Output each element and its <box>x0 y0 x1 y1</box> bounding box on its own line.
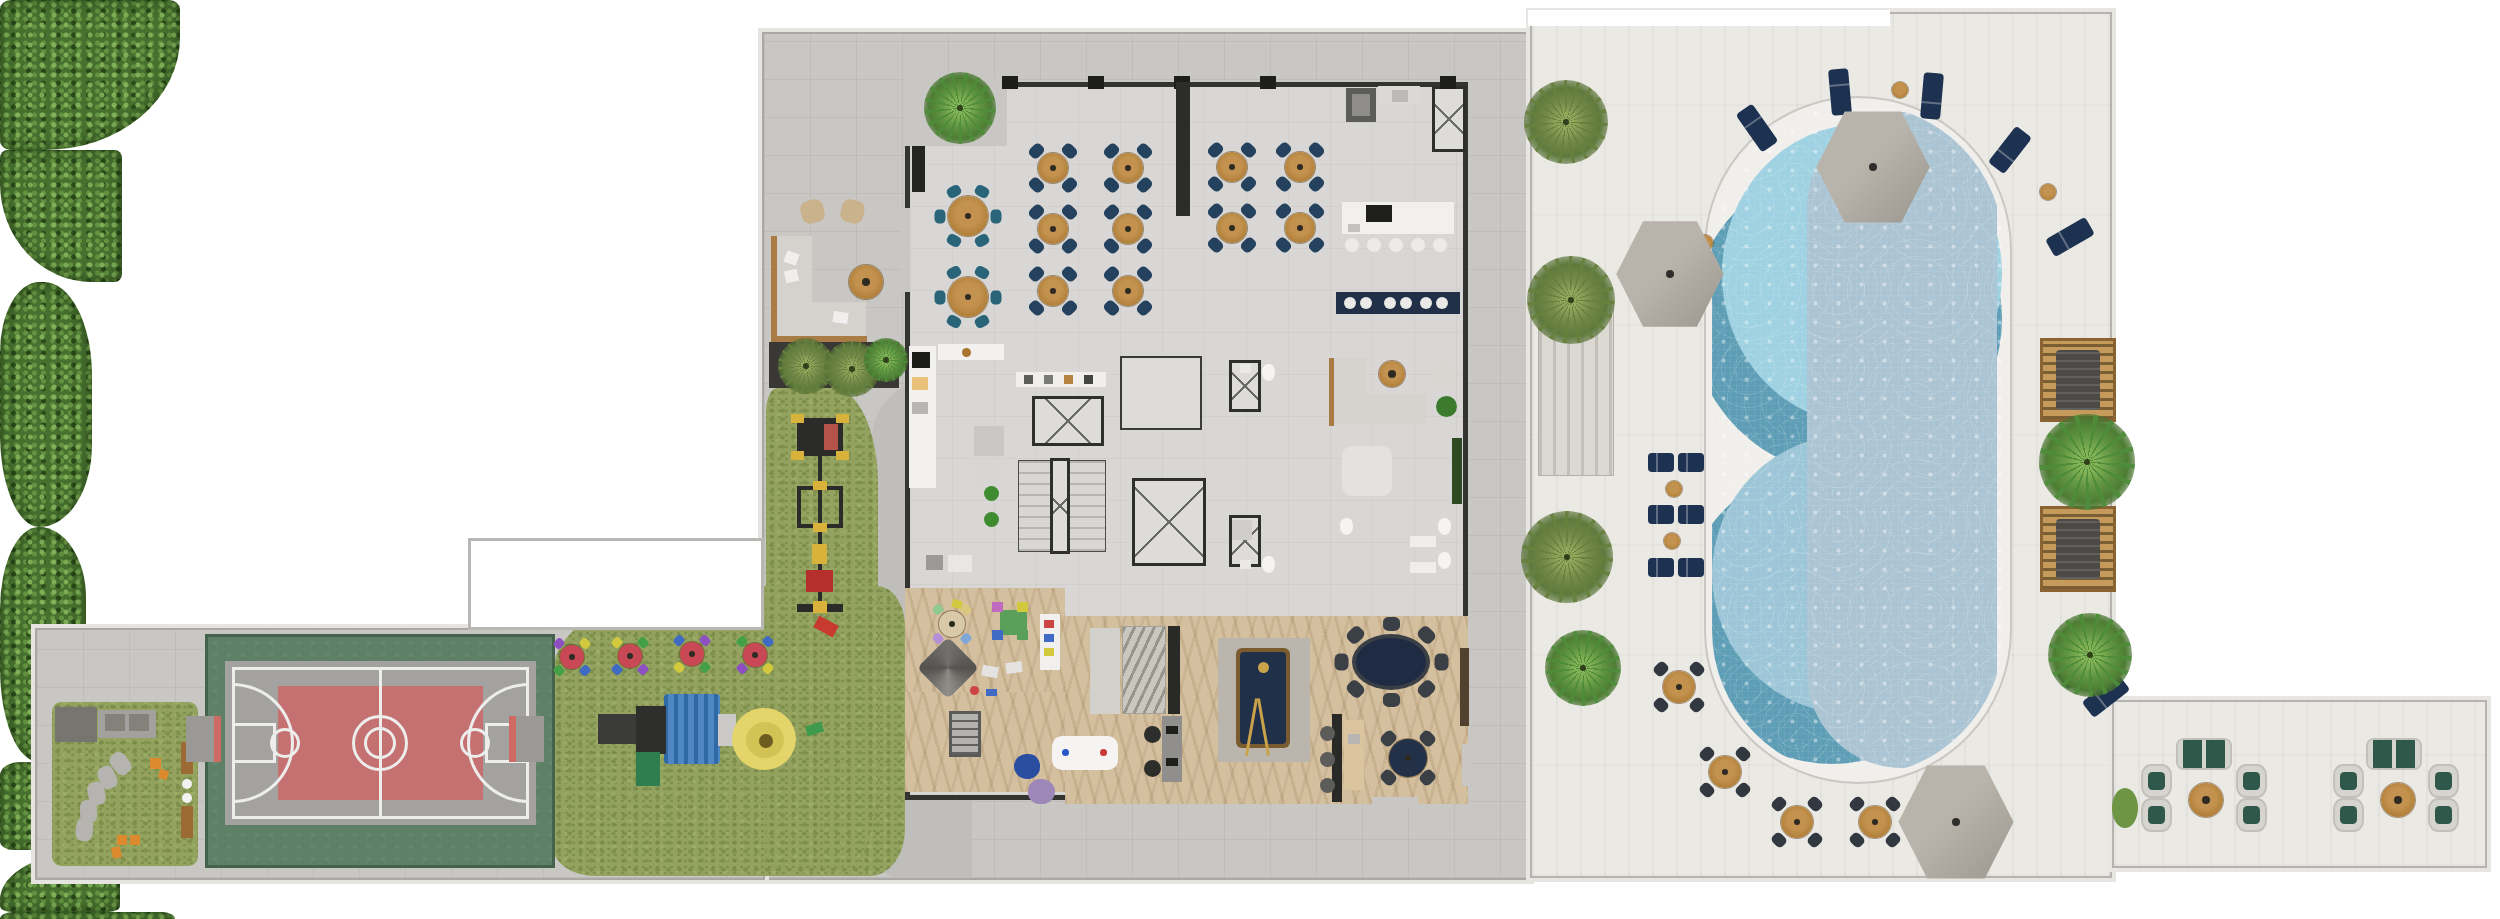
decor-prop <box>970 686 979 695</box>
decor-prop <box>1344 720 1364 790</box>
lounge-armchair <box>2143 766 2170 796</box>
decor-prop <box>1348 734 1360 744</box>
decor-prop <box>1258 662 1269 673</box>
decor-prop <box>1411 238 1425 252</box>
decor-prop <box>1367 238 1381 252</box>
decor-prop <box>1144 726 1161 743</box>
lounge-armchair <box>2238 766 2265 796</box>
side-table <box>2040 184 2056 200</box>
decor-prop <box>1452 438 1462 504</box>
decor-prop <box>516 716 544 762</box>
poker-chair <box>1334 654 1348 671</box>
decor-prop <box>1329 358 1334 426</box>
lounge-armchair <box>2430 800 2457 830</box>
kids-table-center <box>752 652 758 658</box>
decor-prop <box>1144 760 1161 777</box>
decor-prop <box>1433 238 1447 252</box>
decor-prop <box>1432 362 1455 385</box>
decor-prop <box>1372 797 1418 806</box>
dining-table-center <box>1050 288 1056 294</box>
palm-tree <box>1524 80 1608 164</box>
decor-prop <box>948 555 972 572</box>
decor-prop <box>1084 375 1093 384</box>
decor-prop <box>1017 630 1028 640</box>
elevator-shaft-2 <box>1132 478 1206 566</box>
palm-tree <box>864 338 908 382</box>
dining-table-center <box>1297 225 1303 231</box>
pool-dining-table-center <box>1794 819 1800 825</box>
decor-prop <box>105 714 125 731</box>
decor-prop <box>901 208 910 292</box>
pool-dining-table-center <box>1872 819 1878 825</box>
dining-table-center <box>1125 288 1131 294</box>
decor-prop <box>1262 364 1275 381</box>
lounge-armchair <box>2143 800 2170 830</box>
decor-prop <box>1005 661 1022 674</box>
terrace-table-center <box>965 294 971 300</box>
decor-prop <box>1462 744 1471 786</box>
decor-prop <box>1260 76 1276 89</box>
decor-prop <box>1100 749 1107 756</box>
coffee-table-center <box>2394 796 2402 804</box>
sun-lounger <box>1920 72 1944 120</box>
side-table <box>1666 481 1682 497</box>
decor-prop <box>1366 205 1392 222</box>
dining-table-center <box>1050 226 1056 232</box>
decor-prop <box>1410 536 1436 547</box>
hedge-planter <box>0 150 122 282</box>
dining-table-center <box>1229 225 1235 231</box>
decor-prop <box>984 486 999 501</box>
terrace-table-chair <box>935 290 946 304</box>
pool-dining-table-center <box>1722 769 1728 775</box>
decor-prop <box>791 451 804 460</box>
decor-prop <box>1044 375 1053 384</box>
decor-prop <box>1410 562 1436 573</box>
decor-prop <box>813 523 827 532</box>
decor-prop <box>1176 82 1190 216</box>
decor-prop <box>186 716 214 762</box>
terrace-table-center <box>965 213 971 219</box>
decor-prop <box>1334 394 1426 424</box>
pergola-daybed <box>2040 338 2116 422</box>
decor-prop <box>1438 518 1451 535</box>
decor-prop <box>1017 602 1028 612</box>
decor-prop <box>974 426 1004 456</box>
decor-prop <box>1240 364 1251 373</box>
decor-prop <box>1384 297 1396 309</box>
decor-prop <box>55 707 97 742</box>
hedge-planter <box>0 912 175 919</box>
decor-prop <box>791 414 804 423</box>
elevator-shaft-1 <box>1032 396 1104 446</box>
decor-prop <box>836 414 849 423</box>
hedge-planter <box>0 282 92 527</box>
decor-prop <box>1460 648 1469 726</box>
decor-prop <box>1002 76 1018 89</box>
pool-dining-table-center <box>1676 684 1682 690</box>
playhouse-roof <box>664 694 720 764</box>
side-table <box>1664 533 1680 549</box>
terrace-table-chair <box>991 209 1002 223</box>
dining-table-center <box>1297 164 1303 170</box>
decor-prop <box>1436 396 1457 417</box>
court-center-circle-inner <box>364 727 396 759</box>
decor-prop <box>1392 90 1408 102</box>
deck-lounger <box>1678 558 1704 577</box>
deck-lounger <box>1648 453 1674 472</box>
decor-prop <box>1232 520 1252 540</box>
sports-court-area <box>205 634 555 868</box>
decor-prop <box>598 714 638 744</box>
lounge-armchair <box>2335 766 2362 796</box>
decor-prop <box>759 734 773 748</box>
decor-prop <box>509 716 516 762</box>
coffee-table-center <box>2202 796 2210 804</box>
decor-prop <box>797 486 843 528</box>
games-table-center <box>1405 755 1411 761</box>
palm-tree <box>1527 256 1615 344</box>
decor-prop <box>1342 446 1392 496</box>
decor-prop <box>1320 752 1335 767</box>
kids-table-center <box>569 654 575 660</box>
decor-prop <box>1166 758 1178 766</box>
decor-prop <box>214 716 221 762</box>
decor-prop <box>150 758 161 769</box>
deck-lounger <box>1678 453 1704 472</box>
loveseat-sofa <box>2368 740 2420 768</box>
lounge-armchair <box>2430 766 2457 796</box>
poker-chair <box>1434 654 1448 671</box>
decor-prop <box>1436 297 1448 309</box>
foosball-room-floor <box>905 692 1065 792</box>
decor-prop <box>1088 76 1104 89</box>
decor-prop <box>1166 726 1178 734</box>
decor-prop <box>974 459 1004 488</box>
court-key-left <box>232 723 276 763</box>
decor-prop <box>1044 634 1054 642</box>
terrace-table-chair <box>991 290 1002 304</box>
decor-prop <box>912 377 928 390</box>
decor-prop <box>1438 552 1451 569</box>
decor-prop <box>1360 297 1372 309</box>
decor-prop <box>1044 620 1054 628</box>
stair-core-rail <box>1050 458 1070 554</box>
decor-prop <box>912 352 930 368</box>
decor-prop <box>182 779 192 789</box>
tv-lounge-rug <box>1122 626 1166 714</box>
decor-prop <box>130 835 140 845</box>
decor-prop <box>129 714 149 731</box>
dining-table-center <box>1050 165 1056 171</box>
decor-prop <box>1320 778 1335 793</box>
decor-prop <box>2112 788 2138 828</box>
decor-prop <box>1344 297 1356 309</box>
dining-table-center <box>1125 165 1131 171</box>
decor-prop <box>1044 648 1054 656</box>
decor-prop <box>1352 94 1370 116</box>
deck-lounger <box>1648 505 1674 524</box>
decor-prop <box>776 302 866 338</box>
decor-prop <box>1024 375 1033 384</box>
decor-prop <box>1168 626 1180 714</box>
foosball-table <box>949 711 981 757</box>
lounge-armchair <box>2335 800 2362 830</box>
decor-prop <box>812 544 827 564</box>
decor-prop <box>181 806 193 838</box>
sun-lounger <box>1828 68 1852 116</box>
decor-prop <box>1240 560 1251 569</box>
hedge-planter <box>0 0 180 150</box>
decor-prop <box>1062 749 1069 756</box>
palm-tree <box>2048 613 2132 697</box>
decor-prop <box>806 570 833 592</box>
decor-prop <box>771 236 777 340</box>
decor-prop <box>992 602 1003 612</box>
palm-tree <box>1521 511 1613 603</box>
decor-prop <box>636 752 660 786</box>
decor-prop <box>813 481 827 490</box>
pool-deck-step-notch <box>1528 10 1890 26</box>
poker-table <box>1352 634 1430 690</box>
dining-table-center <box>1125 226 1131 232</box>
kids-table-center <box>627 653 633 659</box>
service-shaft-kitchen <box>1432 86 1466 152</box>
decor-prop <box>912 146 925 192</box>
decor-prop <box>832 311 848 324</box>
playroom-table-center <box>949 621 955 627</box>
decor-prop <box>1262 556 1275 573</box>
decor-prop <box>1389 238 1403 252</box>
decor-prop <box>117 835 127 845</box>
decor-prop <box>1028 779 1055 804</box>
decor-prop <box>813 601 827 613</box>
poker-chair <box>1383 617 1400 631</box>
decor-prop <box>992 630 1003 640</box>
decor-prop <box>926 555 943 570</box>
palm-tree <box>1545 630 1621 706</box>
loveseat-sofa <box>2178 740 2230 768</box>
decor-prop <box>1440 76 1456 89</box>
pergola-daybed <box>2040 506 2116 592</box>
side-table <box>1892 82 1908 98</box>
palm-tree <box>924 72 996 144</box>
terrace-table-chair <box>935 209 946 223</box>
decor-prop <box>636 706 666 754</box>
decor-prop <box>824 424 838 450</box>
decor-prop <box>1400 297 1412 309</box>
neighbor-roof-slab <box>468 538 764 630</box>
lounge-armchair <box>2238 800 2265 830</box>
decor-prop <box>1014 754 1040 779</box>
decor-prop <box>938 344 1004 360</box>
elevator-lobby <box>1120 356 1202 430</box>
decor-prop <box>1340 518 1353 535</box>
decor-prop <box>984 512 999 527</box>
decor-prop <box>986 689 997 696</box>
poker-chair <box>1383 693 1400 707</box>
decor-prop <box>1345 238 1359 252</box>
decor-prop <box>182 793 192 803</box>
coffee-table-center <box>862 278 870 286</box>
coffee-table-center <box>1388 370 1396 378</box>
floor-plan-canvas <box>0 0 2500 919</box>
decor-prop <box>1064 375 1073 384</box>
decor-prop <box>836 451 849 460</box>
dining-table-center <box>1229 164 1235 170</box>
kids-table-center <box>689 651 695 657</box>
palm-tree <box>2039 414 2135 510</box>
decor-prop <box>962 348 971 357</box>
decor-prop <box>1090 628 1120 714</box>
decor-prop <box>1420 297 1432 309</box>
deck-lounger <box>1678 505 1704 524</box>
decor-prop <box>1320 726 1335 741</box>
decor-prop <box>912 402 928 414</box>
decor-prop <box>1348 224 1360 232</box>
deck-lounger <box>1648 558 1674 577</box>
